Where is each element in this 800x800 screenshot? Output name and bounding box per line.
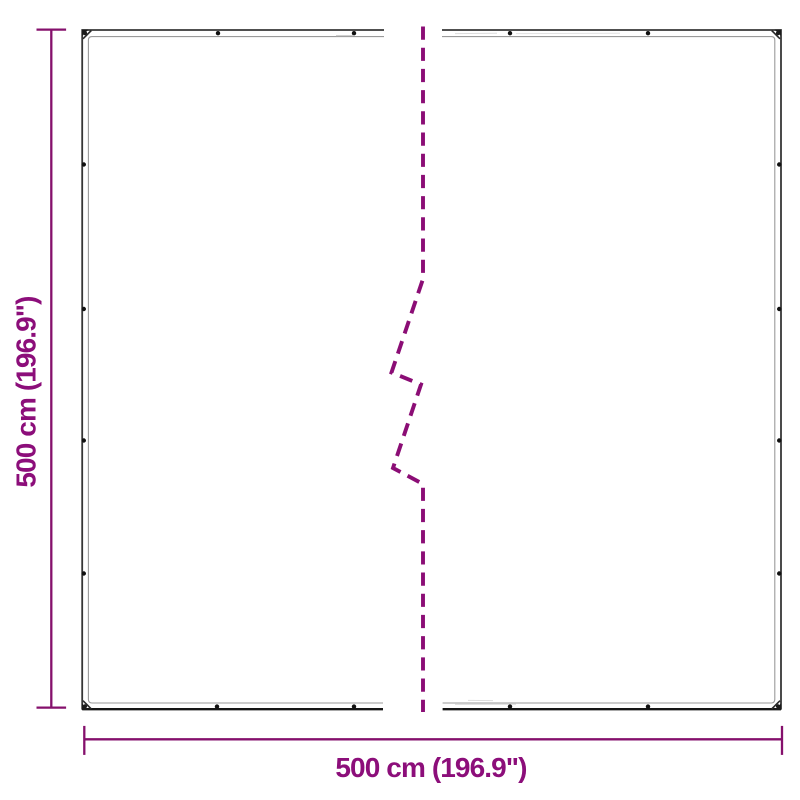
svg-text:500 cm (196.9"): 500 cm (196.9") bbox=[335, 752, 526, 783]
svg-text:500 cm (196.9"): 500 cm (196.9") bbox=[11, 296, 42, 487]
